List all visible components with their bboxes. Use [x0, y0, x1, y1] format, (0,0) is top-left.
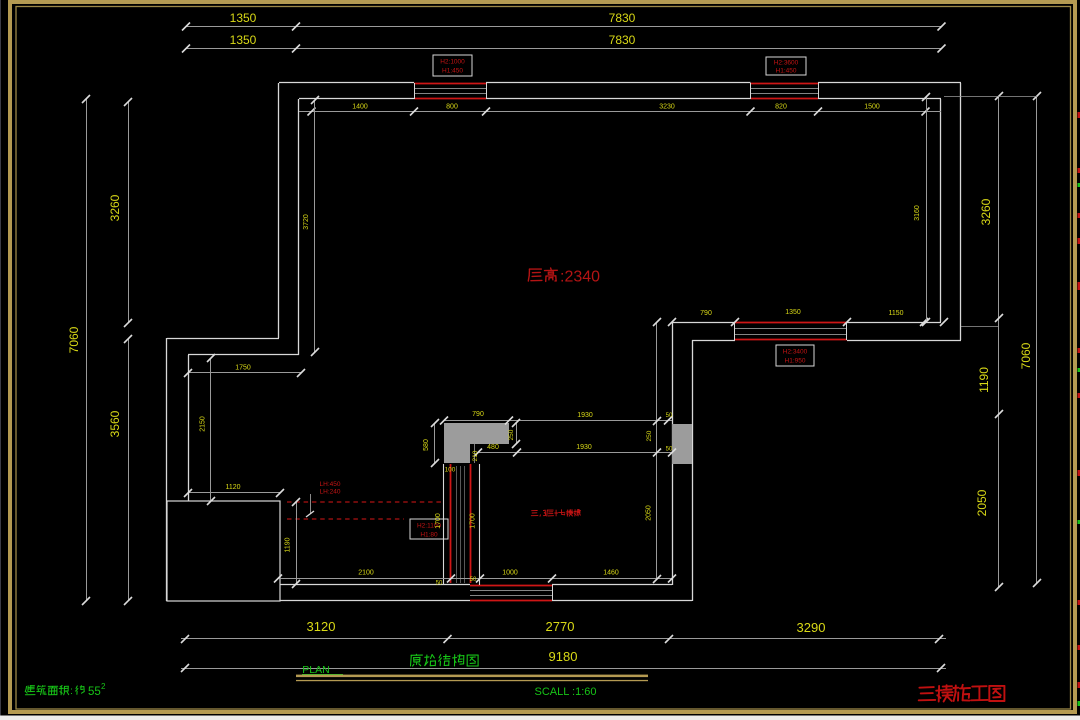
- svg-text:3120: 3120: [307, 619, 336, 634]
- svg-text:50: 50: [666, 413, 673, 419]
- svg-text:250: 250: [646, 430, 653, 441]
- svg-text:2770: 2770: [546, 619, 575, 634]
- svg-text:H2:3400: H2:3400: [783, 349, 808, 356]
- svg-text:LH:240: LH:240: [320, 489, 341, 496]
- svg-text:1350: 1350: [785, 309, 801, 316]
- svg-text:1190: 1190: [977, 367, 991, 393]
- svg-text:1700: 1700: [435, 513, 442, 529]
- svg-text:55: 55: [88, 686, 101, 698]
- svg-text:2150: 2150: [200, 416, 207, 432]
- svg-text:1000: 1000: [502, 570, 518, 577]
- svg-text:3290: 3290: [797, 620, 826, 635]
- svg-text:H2:1000: H2:1000: [440, 59, 465, 66]
- svg-text:1190: 1190: [285, 537, 292, 552]
- svg-text:2050: 2050: [646, 505, 653, 521]
- svg-text:1350: 1350: [230, 33, 257, 47]
- svg-text:100: 100: [445, 467, 456, 474]
- svg-text:3260: 3260: [108, 194, 122, 221]
- svg-text:H1:950: H1:950: [785, 358, 806, 365]
- svg-text:790: 790: [700, 310, 712, 317]
- svg-text:1930: 1930: [576, 444, 592, 451]
- svg-text:50: 50: [666, 447, 673, 453]
- svg-text:3160: 3160: [914, 205, 921, 221]
- svg-text:50: 50: [436, 581, 443, 587]
- svg-text:1700: 1700: [470, 513, 477, 529]
- svg-text:7060: 7060: [1019, 342, 1033, 369]
- svg-text:H1:450: H1:450: [442, 68, 463, 75]
- svg-text:3560: 3560: [108, 410, 122, 437]
- svg-text:1400: 1400: [352, 104, 368, 111]
- svg-text:3260: 3260: [979, 198, 993, 225]
- svg-text:250: 250: [508, 429, 515, 440]
- svg-text:9180: 9180: [549, 649, 578, 664]
- svg-text:3230: 3230: [659, 104, 675, 111]
- svg-text:820: 820: [775, 104, 787, 111]
- svg-text:50: 50: [470, 577, 477, 583]
- svg-text:210: 210: [472, 450, 479, 461]
- svg-text:7830: 7830: [609, 11, 636, 25]
- svg-text:2050: 2050: [975, 489, 989, 516]
- svg-text:1500: 1500: [864, 104, 880, 111]
- svg-text::: :: [70, 686, 73, 697]
- svg-text:580: 580: [423, 439, 430, 451]
- svg-text:7060: 7060: [67, 326, 81, 353]
- svg-text:3720: 3720: [303, 214, 310, 230]
- svg-text:2100: 2100: [358, 570, 374, 577]
- svg-text:790: 790: [472, 411, 484, 418]
- svg-text:2: 2: [101, 682, 106, 691]
- svg-text:1930: 1930: [577, 412, 593, 419]
- svg-text:1120: 1120: [225, 484, 240, 491]
- svg-text:H1:450: H1:450: [776, 68, 797, 75]
- svg-text:LH:450: LH:450: [320, 481, 341, 488]
- svg-text::2340: :2340: [560, 269, 600, 286]
- svg-text:7830: 7830: [609, 33, 636, 47]
- svg-text:SCALL :1:60: SCALL :1:60: [535, 686, 597, 698]
- svg-text:H2:3600: H2:3600: [774, 60, 799, 67]
- svg-text:1460: 1460: [603, 570, 619, 577]
- svg-text:H1:80: H1:80: [420, 532, 438, 539]
- svg-text:800: 800: [446, 104, 458, 111]
- svg-text:1150: 1150: [888, 310, 903, 317]
- svg-text:480: 480: [487, 444, 499, 451]
- svg-text:1750: 1750: [235, 365, 251, 372]
- svg-text:1350: 1350: [230, 11, 257, 25]
